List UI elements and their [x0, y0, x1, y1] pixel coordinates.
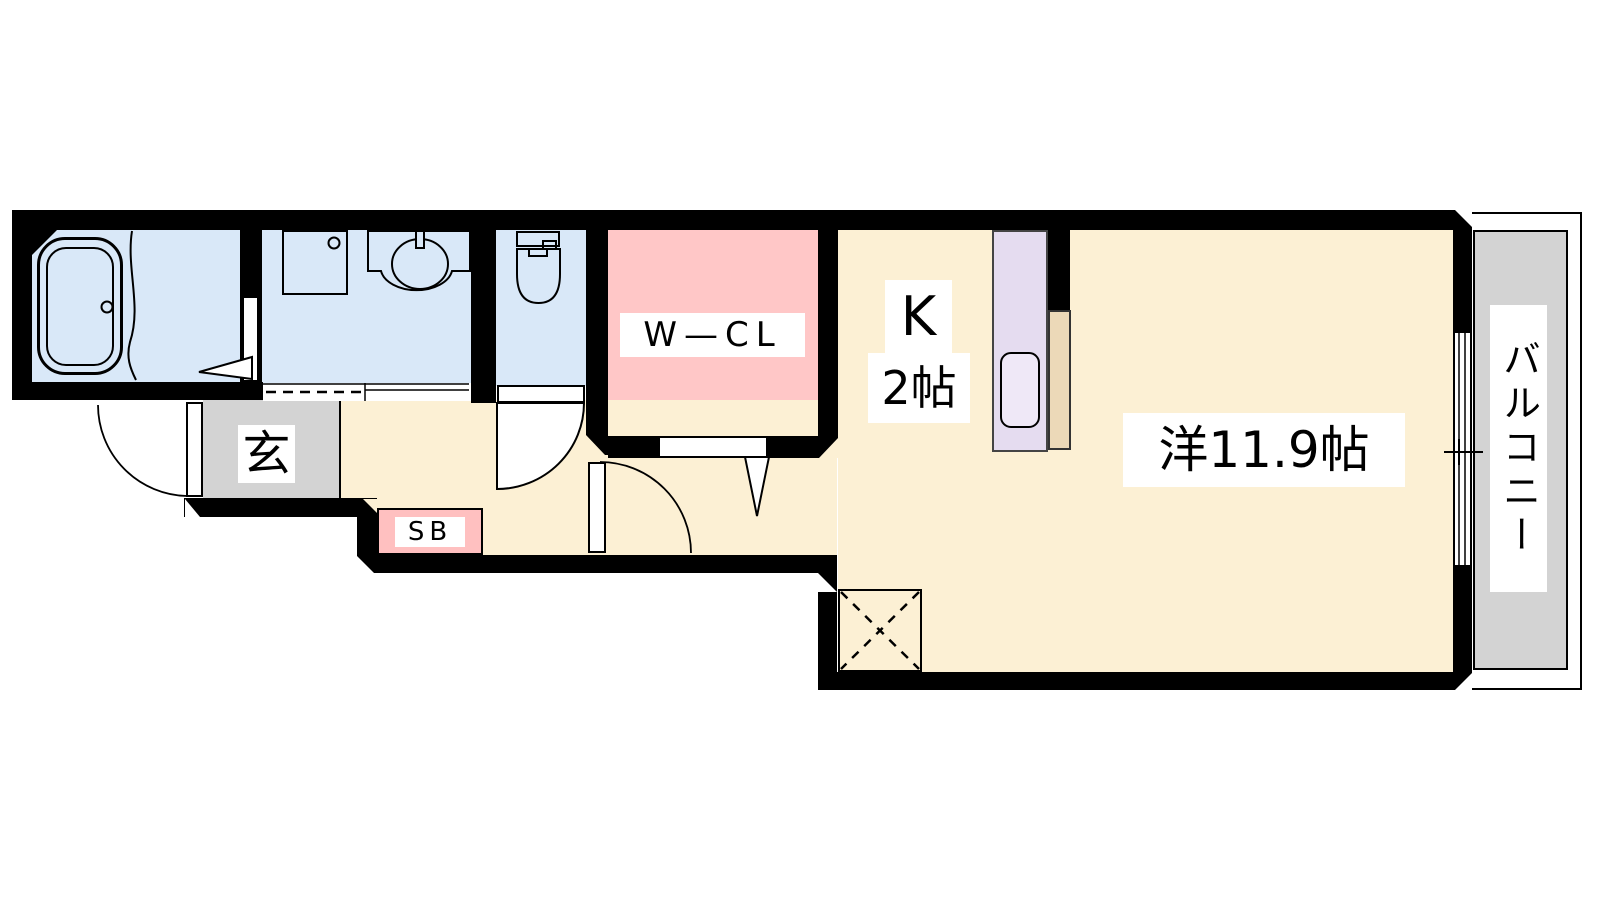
bath-deck-curve	[128, 231, 136, 380]
closet-folding-door-triangle	[745, 457, 769, 516]
bath-door-triangle	[199, 357, 252, 379]
bathtub-drain	[102, 302, 113, 313]
bevel-step-top	[363, 499, 377, 513]
floor-plan: W—CL K 2帖 洋11.9帖 玄 SB バルコニー	[0, 0, 1600, 900]
toilet-bowl	[517, 249, 560, 303]
bevel-jamb-bottom	[586, 435, 605, 455]
bevel-closet-corner	[819, 438, 838, 458]
walkin-closet-label: W—CL	[620, 313, 805, 357]
living-door-arc	[600, 462, 691, 553]
living-room-label: 洋11.9帖	[1123, 413, 1405, 487]
kitchen-size-label: 2帖	[868, 353, 970, 423]
washer-pan-drain	[329, 238, 340, 249]
toilet-flush-handle	[543, 241, 556, 249]
bevel-step-bottom	[357, 556, 374, 573]
bevel-room-wall-top	[818, 573, 837, 592]
toilet-bowl-notch	[529, 249, 547, 256]
bevel-bottom-right	[1455, 673, 1472, 690]
shoe-box: SB	[377, 508, 483, 555]
balcony-label: バルコニー	[1490, 305, 1547, 592]
entrance-door-arc	[98, 405, 187, 496]
vanity-faucet	[416, 231, 424, 248]
bevel-top-right	[1455, 210, 1472, 227]
bevel-top-left-inner	[32, 230, 57, 255]
kitchen-label: K	[885, 280, 952, 353]
toilet-door-swing	[497, 403, 584, 489]
bevel-entrance-wall-end	[185, 499, 200, 517]
shoe-box-label: SB	[395, 517, 465, 547]
entrance-label: 玄	[238, 425, 295, 483]
